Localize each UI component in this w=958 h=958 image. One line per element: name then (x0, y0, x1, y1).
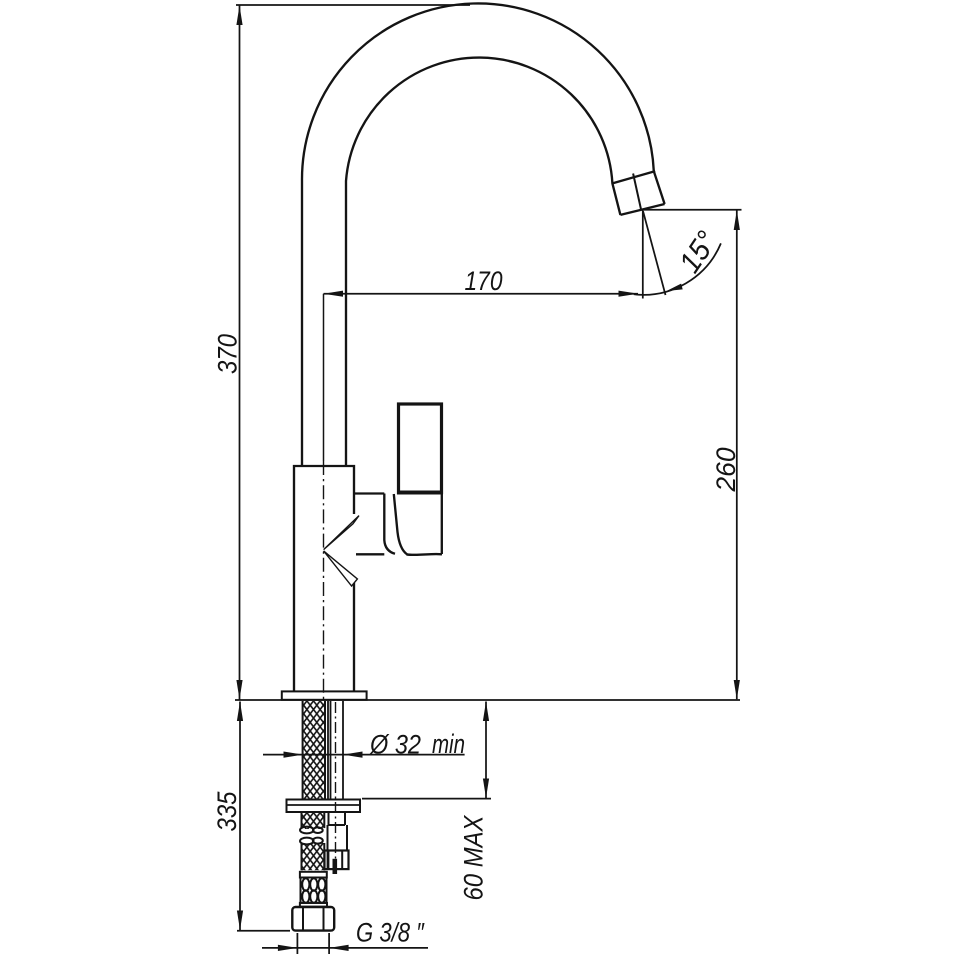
svg-text:G 3/8 ″: G 3/8 ″ (356, 918, 425, 948)
svg-text:335: 335 (212, 791, 242, 832)
svg-text:60 MAX: 60 MAX (459, 815, 489, 901)
svg-text:170: 170 (465, 266, 503, 296)
svg-text:260: 260 (711, 448, 741, 493)
svg-text:Ø 32: Ø 32 (369, 729, 421, 759)
svg-text:370: 370 (213, 334, 243, 374)
svg-text:min: min (432, 729, 465, 759)
